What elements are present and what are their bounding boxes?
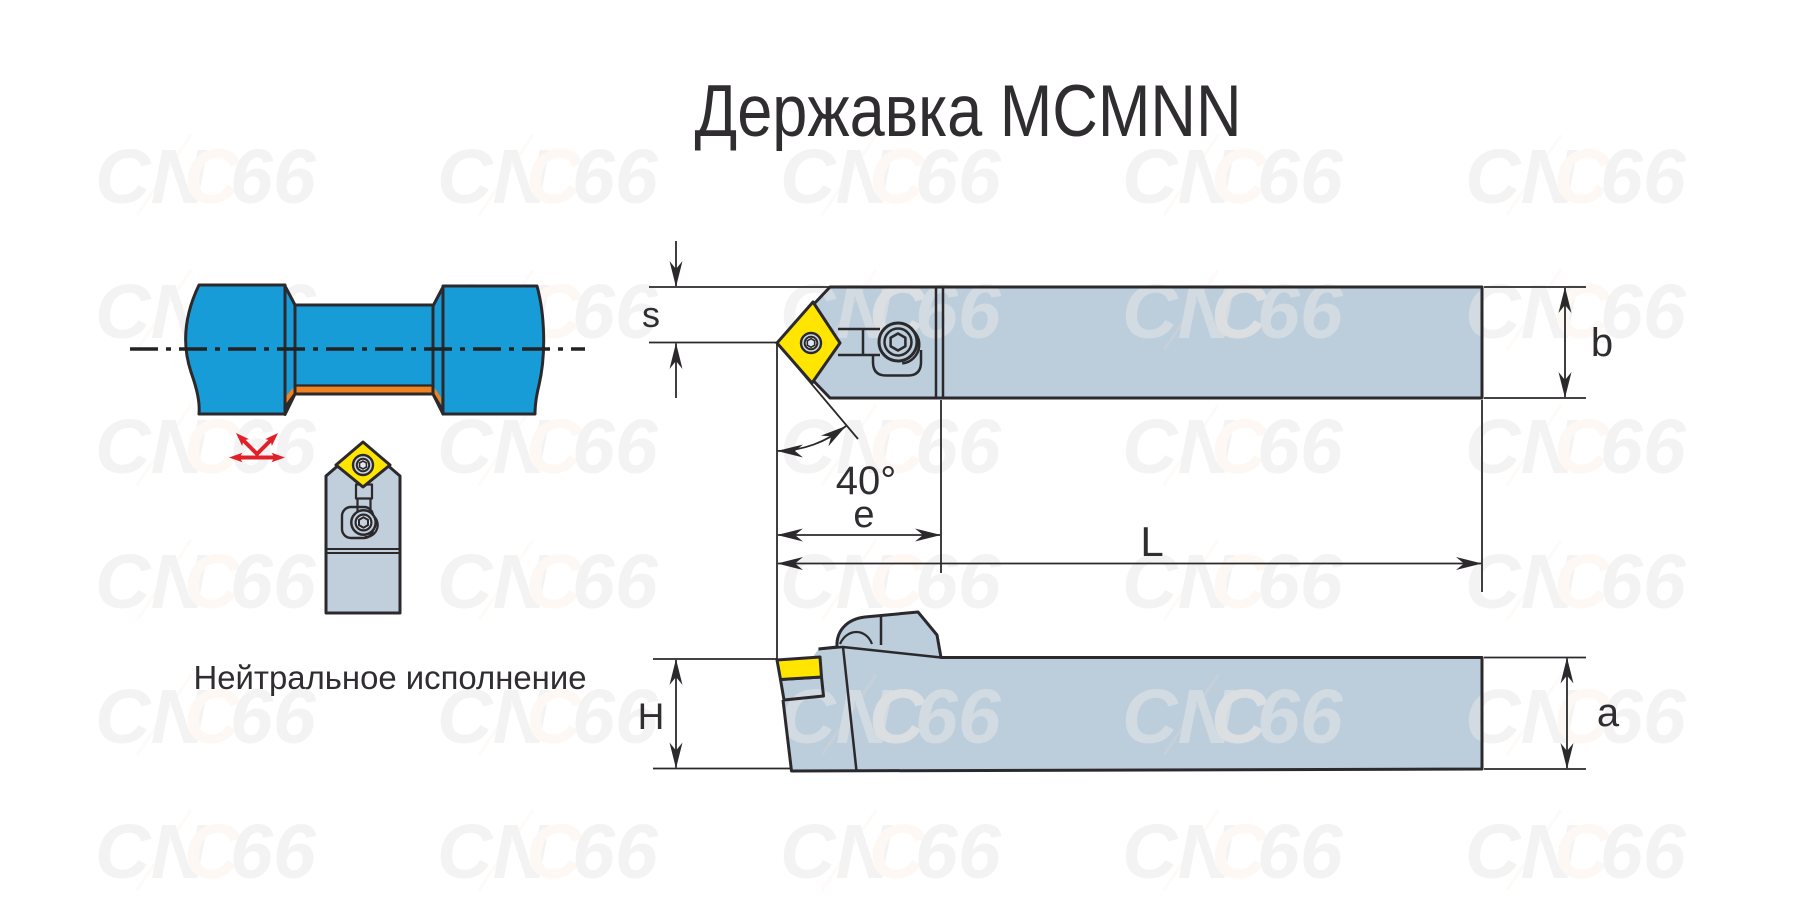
svg-text:Нейтральное исполнение: Нейтральное исполнение <box>194 659 587 696</box>
svg-text:a: a <box>1597 691 1620 735</box>
svg-text:H: H <box>638 696 665 737</box>
svg-text:s: s <box>642 294 660 335</box>
svg-text:b: b <box>1591 321 1613 365</box>
svg-text:Державка MCMNN: Державка MCMNN <box>695 71 1242 152</box>
svg-text:e: e <box>853 494 874 536</box>
svg-text:L: L <box>1140 518 1163 565</box>
